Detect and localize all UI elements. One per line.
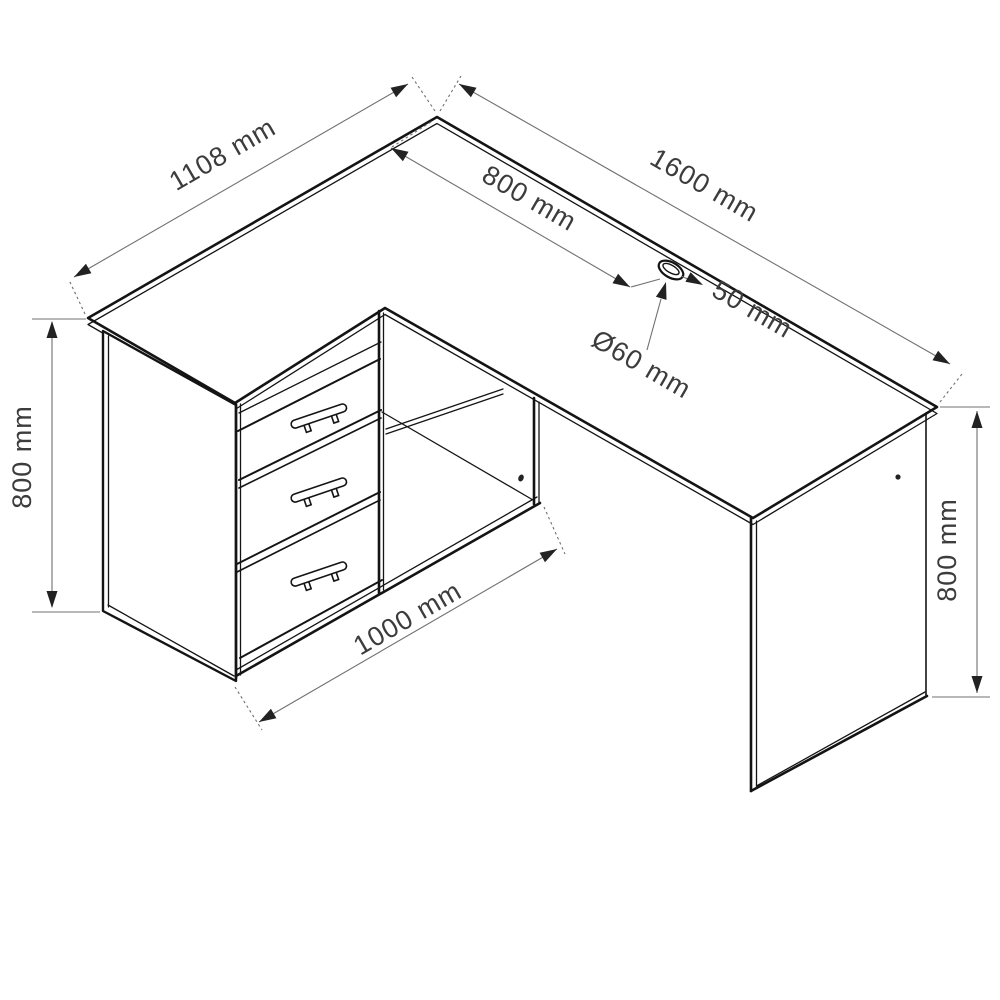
dimension-grommet-from-left: 800 mm — [391, 122, 660, 287]
dimension-label: Ø60 mm — [587, 324, 697, 405]
cam-lock-dot — [895, 474, 900, 479]
dimension-top-width: 1600 mm — [440, 76, 962, 402]
dimension-label: 50 mm — [707, 274, 798, 344]
open-shelf — [382, 389, 539, 504]
drawer-handle-icon — [290, 403, 350, 436]
drawer-middle — [237, 477, 380, 564]
dimension-right-height: 800 mm — [932, 407, 990, 697]
dimension-label: 1600 mm — [645, 142, 764, 228]
cam-lock-dot — [517, 474, 525, 483]
technical-drawing-canvas: 1108 mm 1600 mm 800 mm 50 mm Ø60 mm — [0, 0, 1000, 1000]
cabinet-side-panel — [103, 331, 236, 681]
cable-grommet-icon — [656, 257, 687, 283]
dimension-left-height: 800 mm — [7, 319, 100, 612]
dimension-label: 800 mm — [932, 498, 962, 602]
drawer-handle-icon — [290, 561, 350, 594]
drawer-handle-icon — [290, 477, 350, 510]
dimension-grommet-diameter: Ø60 mm — [587, 282, 697, 405]
dimension-label: 1108 mm — [164, 112, 281, 197]
dimension-label: 800 mm — [7, 405, 37, 509]
dimension-grommet-from-edge: 50 mm — [681, 272, 798, 344]
corner-desk-diagram: 1108 mm 1600 mm 800 mm 50 mm Ø60 mm — [0, 0, 1000, 1000]
desk-side-panel-right — [751, 413, 927, 791]
dimension-left-depth: 1108 mm — [69, 77, 435, 314]
shelf-interior-corner-line — [382, 412, 533, 500]
